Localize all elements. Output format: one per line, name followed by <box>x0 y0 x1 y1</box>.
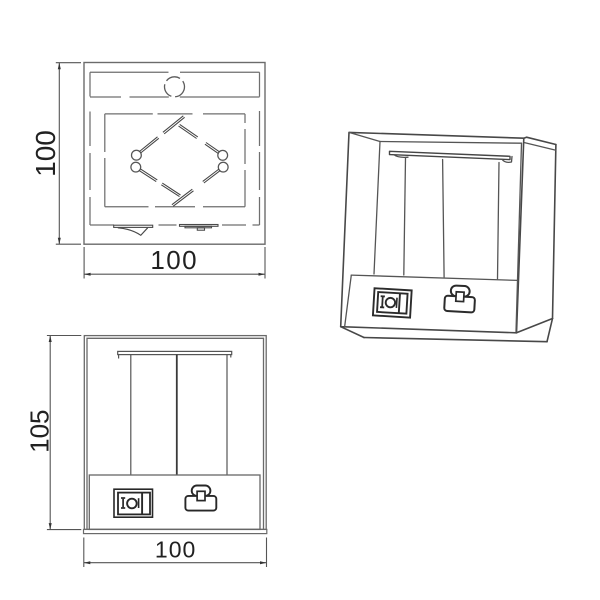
svg-text:105: 105 <box>25 410 55 453</box>
svg-text:100: 100 <box>30 130 61 177</box>
svg-text:100: 100 <box>155 537 196 563</box>
svg-text:100: 100 <box>150 245 198 275</box>
